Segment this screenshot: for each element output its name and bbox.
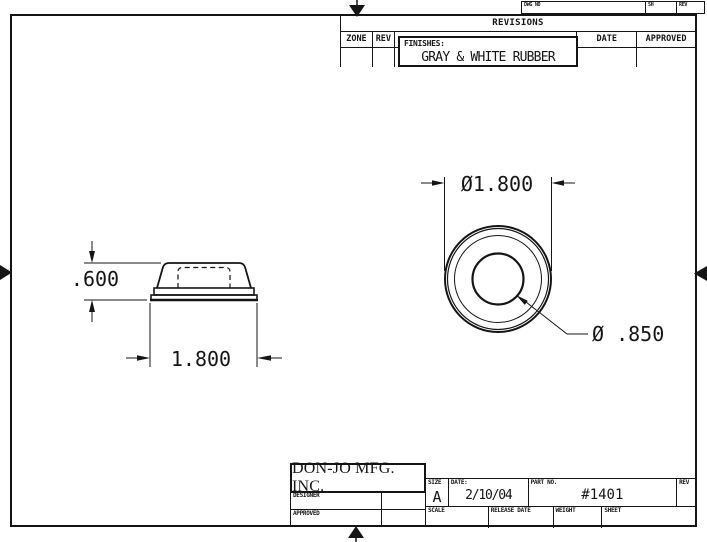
side-view: .600 1.800 — [71, 241, 282, 371]
top-view-outer-circle — [445, 226, 551, 332]
side-view-hidden-recess — [178, 268, 230, 289]
top-view-hole-circle — [473, 254, 524, 305]
side-height-dimension-text: .600 — [71, 267, 119, 291]
top-view: Ø1.800 Ø .850 — [421, 172, 664, 346]
hole-diameter-leader — [516, 295, 588, 334]
side-view-flange-upper — [154, 288, 254, 295]
hole-diameter-text: Ø .850 — [592, 322, 664, 346]
alignment-mark-top — [349, 0, 365, 17]
drawing-sheet: DWG NO SH REV REVISIONS ZONE REV DATE AP… — [0, 0, 707, 542]
alignment-mark-bottom — [348, 526, 364, 542]
side-view-dome-profile — [157, 263, 251, 288]
top-view-rim-circle — [448, 229, 549, 330]
top-outer-diameter-text: Ø1.800 — [461, 172, 533, 196]
finishes-value: GRAY & WHITE RUBBER — [400, 50, 576, 65]
finishes-label: FINISHES: — [404, 40, 445, 48]
top-view-inner-rim-circle — [455, 236, 542, 323]
company-name: DON-JO MFG. INC. — [292, 460, 424, 496]
company-box: DON-JO MFG. INC. — [290, 463, 426, 493]
finishes-box: FINISHES: GRAY & WHITE RUBBER — [398, 36, 578, 67]
alignment-mark-right — [694, 266, 707, 281]
alignment-mark-left — [0, 265, 12, 280]
side-width-dimension-text: 1.800 — [171, 347, 231, 371]
